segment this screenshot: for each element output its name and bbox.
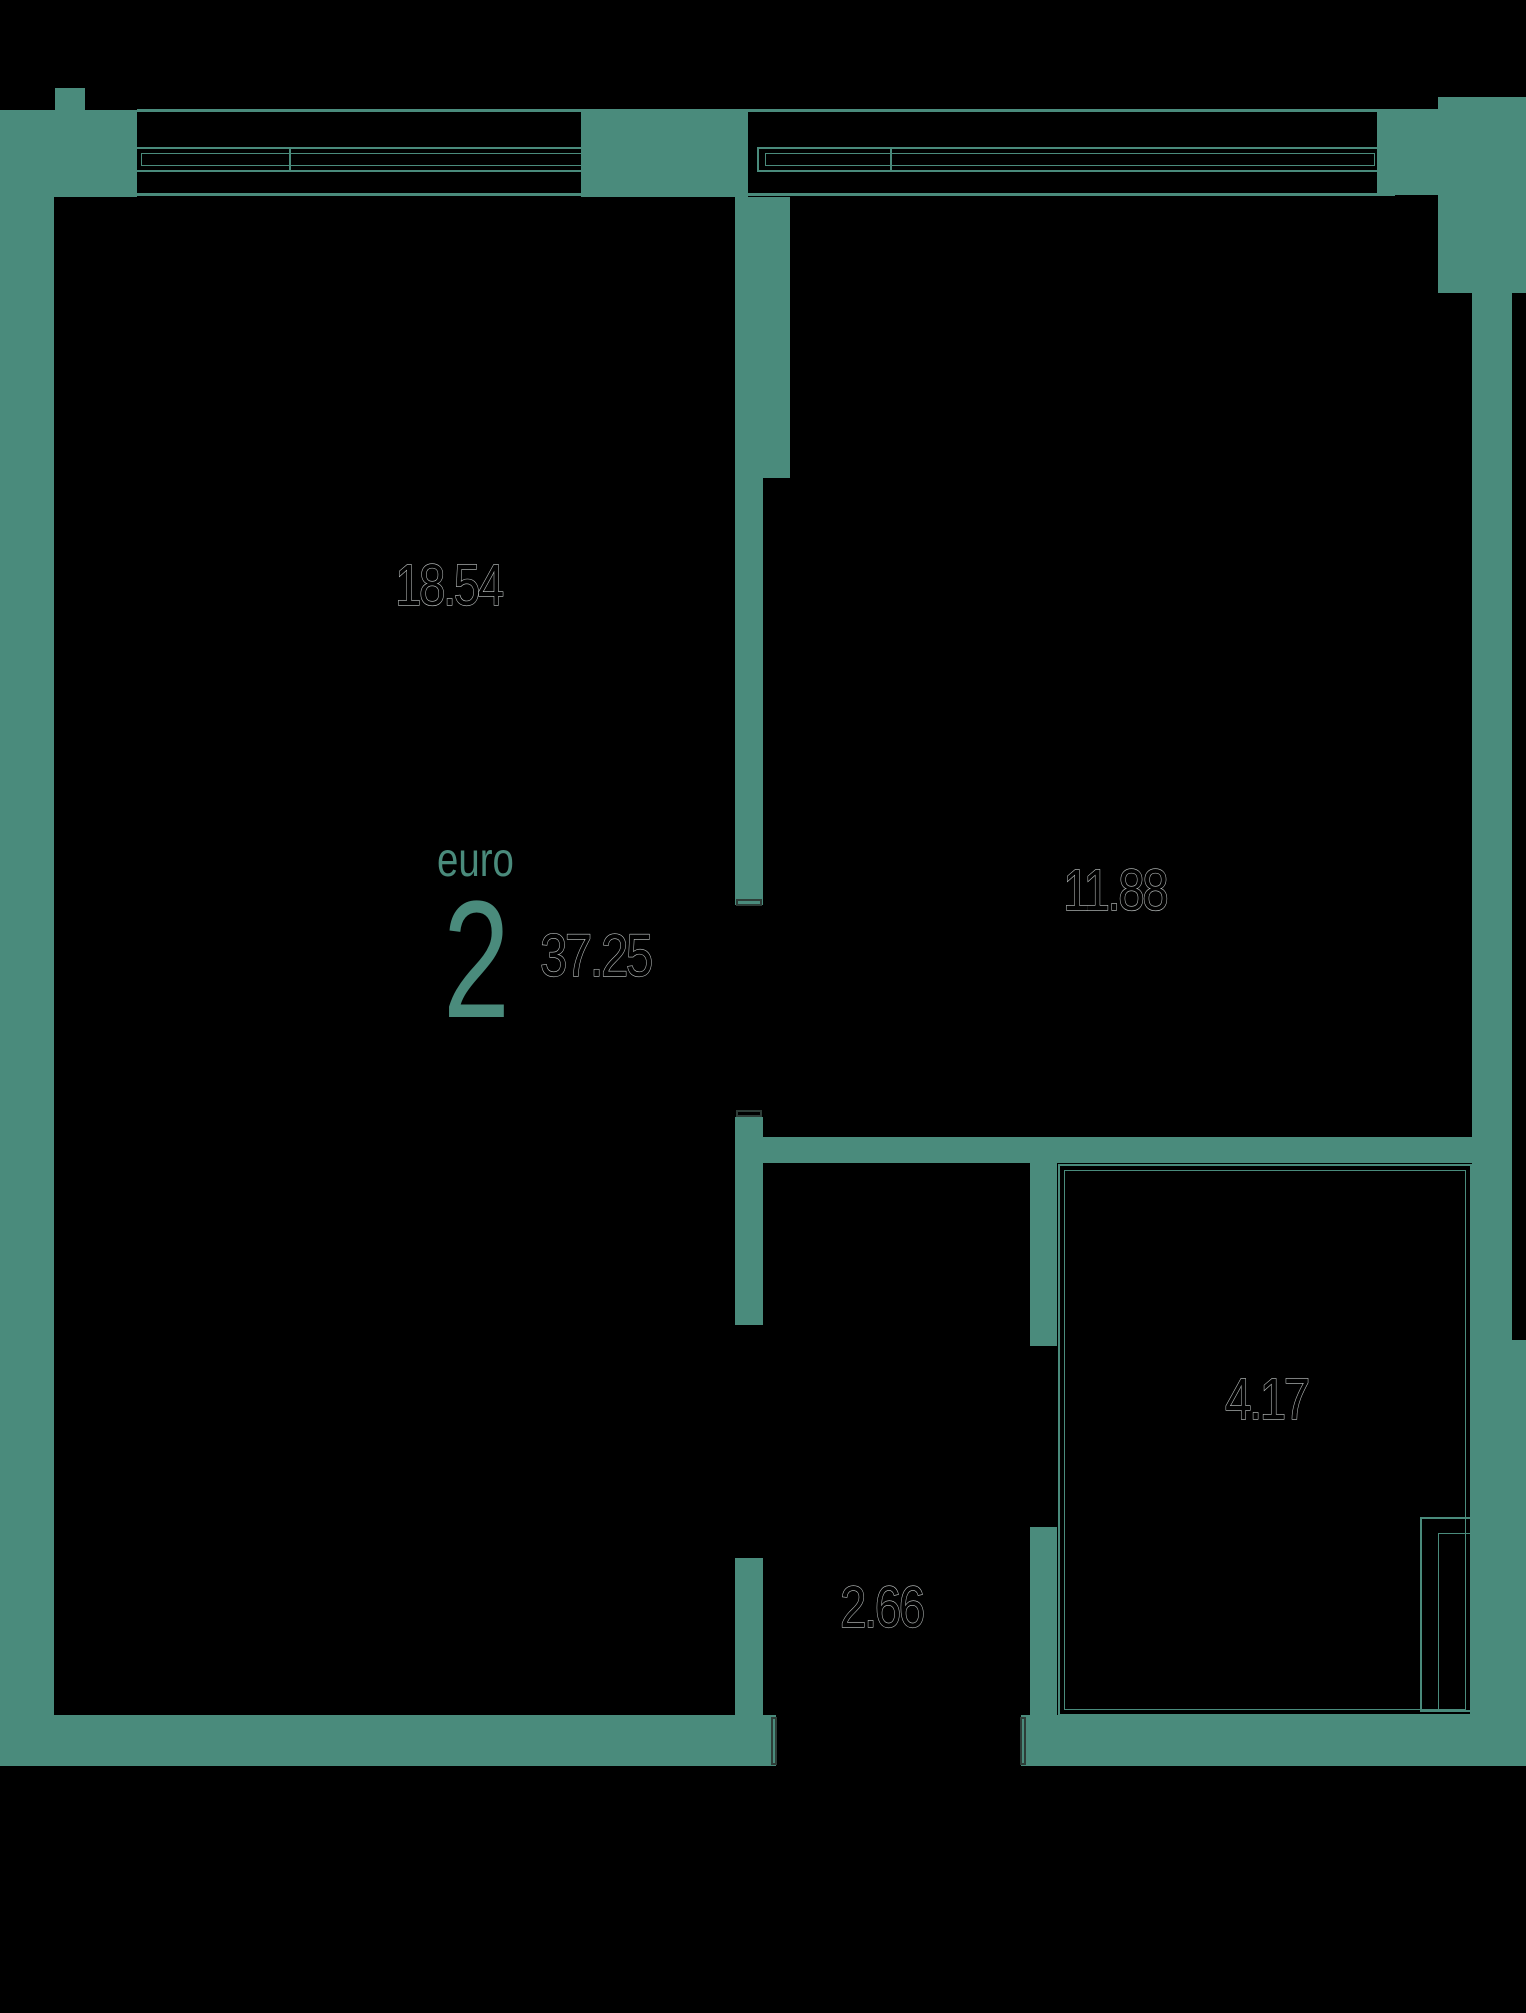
wall-bottom-left [0,1715,776,1766]
bedroom-door-jamb-bottom [736,1110,762,1117]
wall-divider-mid [735,478,763,905]
wall-bottom-right [1021,1715,1526,1766]
interior-line-right-window [748,193,1395,196]
duct-outline-inner [1438,1533,1472,1712]
room-area-label-bedroom: 11.88 [1063,862,1166,920]
wall-hall-top [763,1137,1472,1163]
right-window-sash-divider [890,147,892,172]
unit-rooms-count: 2 [443,877,510,1044]
wall-top-left-step [55,88,85,110]
entry-door-jamb-right [1020,1717,1026,1765]
wall-right-lower [1472,1340,1526,1715]
interior-line-left-window [137,193,592,196]
right-window-inner-frame [765,153,1375,166]
entry-door-jamb-left [771,1717,777,1765]
floor-plan: 18.54 11.88 4.17 2.66 euro 2 37.25 [0,0,1526,2013]
exterior-line-left-window [137,109,581,112]
bathroom-outline-inner [1064,1170,1466,1710]
room-area-label-bathroom: 4.17 [1225,1371,1308,1429]
left-window-inner-frame [141,153,584,166]
room-area-label-hallway: 2.66 [840,1579,923,1637]
wall-hall-right-upper [1030,1163,1057,1346]
wall-top-right-inner [1377,109,1438,195]
wall-top-left-block [0,110,137,197]
wall-left [0,197,54,1715]
room-area-label-living: 18.54 [395,557,502,615]
left-window-sash-divider [289,147,291,172]
bedroom-door-jamb-top [736,899,762,906]
wall-divider-bottom [735,1558,763,1715]
exterior-line-right-window [748,109,1377,112]
wall-hall-right-lower [1030,1527,1057,1715]
wall-divider-upper [735,197,790,478]
wall-right-upper [1472,195,1512,1340]
unit-total-area: 37.25 [540,926,651,986]
wall-divider-lower [735,1117,763,1325]
wall-window-pier [581,109,748,197]
